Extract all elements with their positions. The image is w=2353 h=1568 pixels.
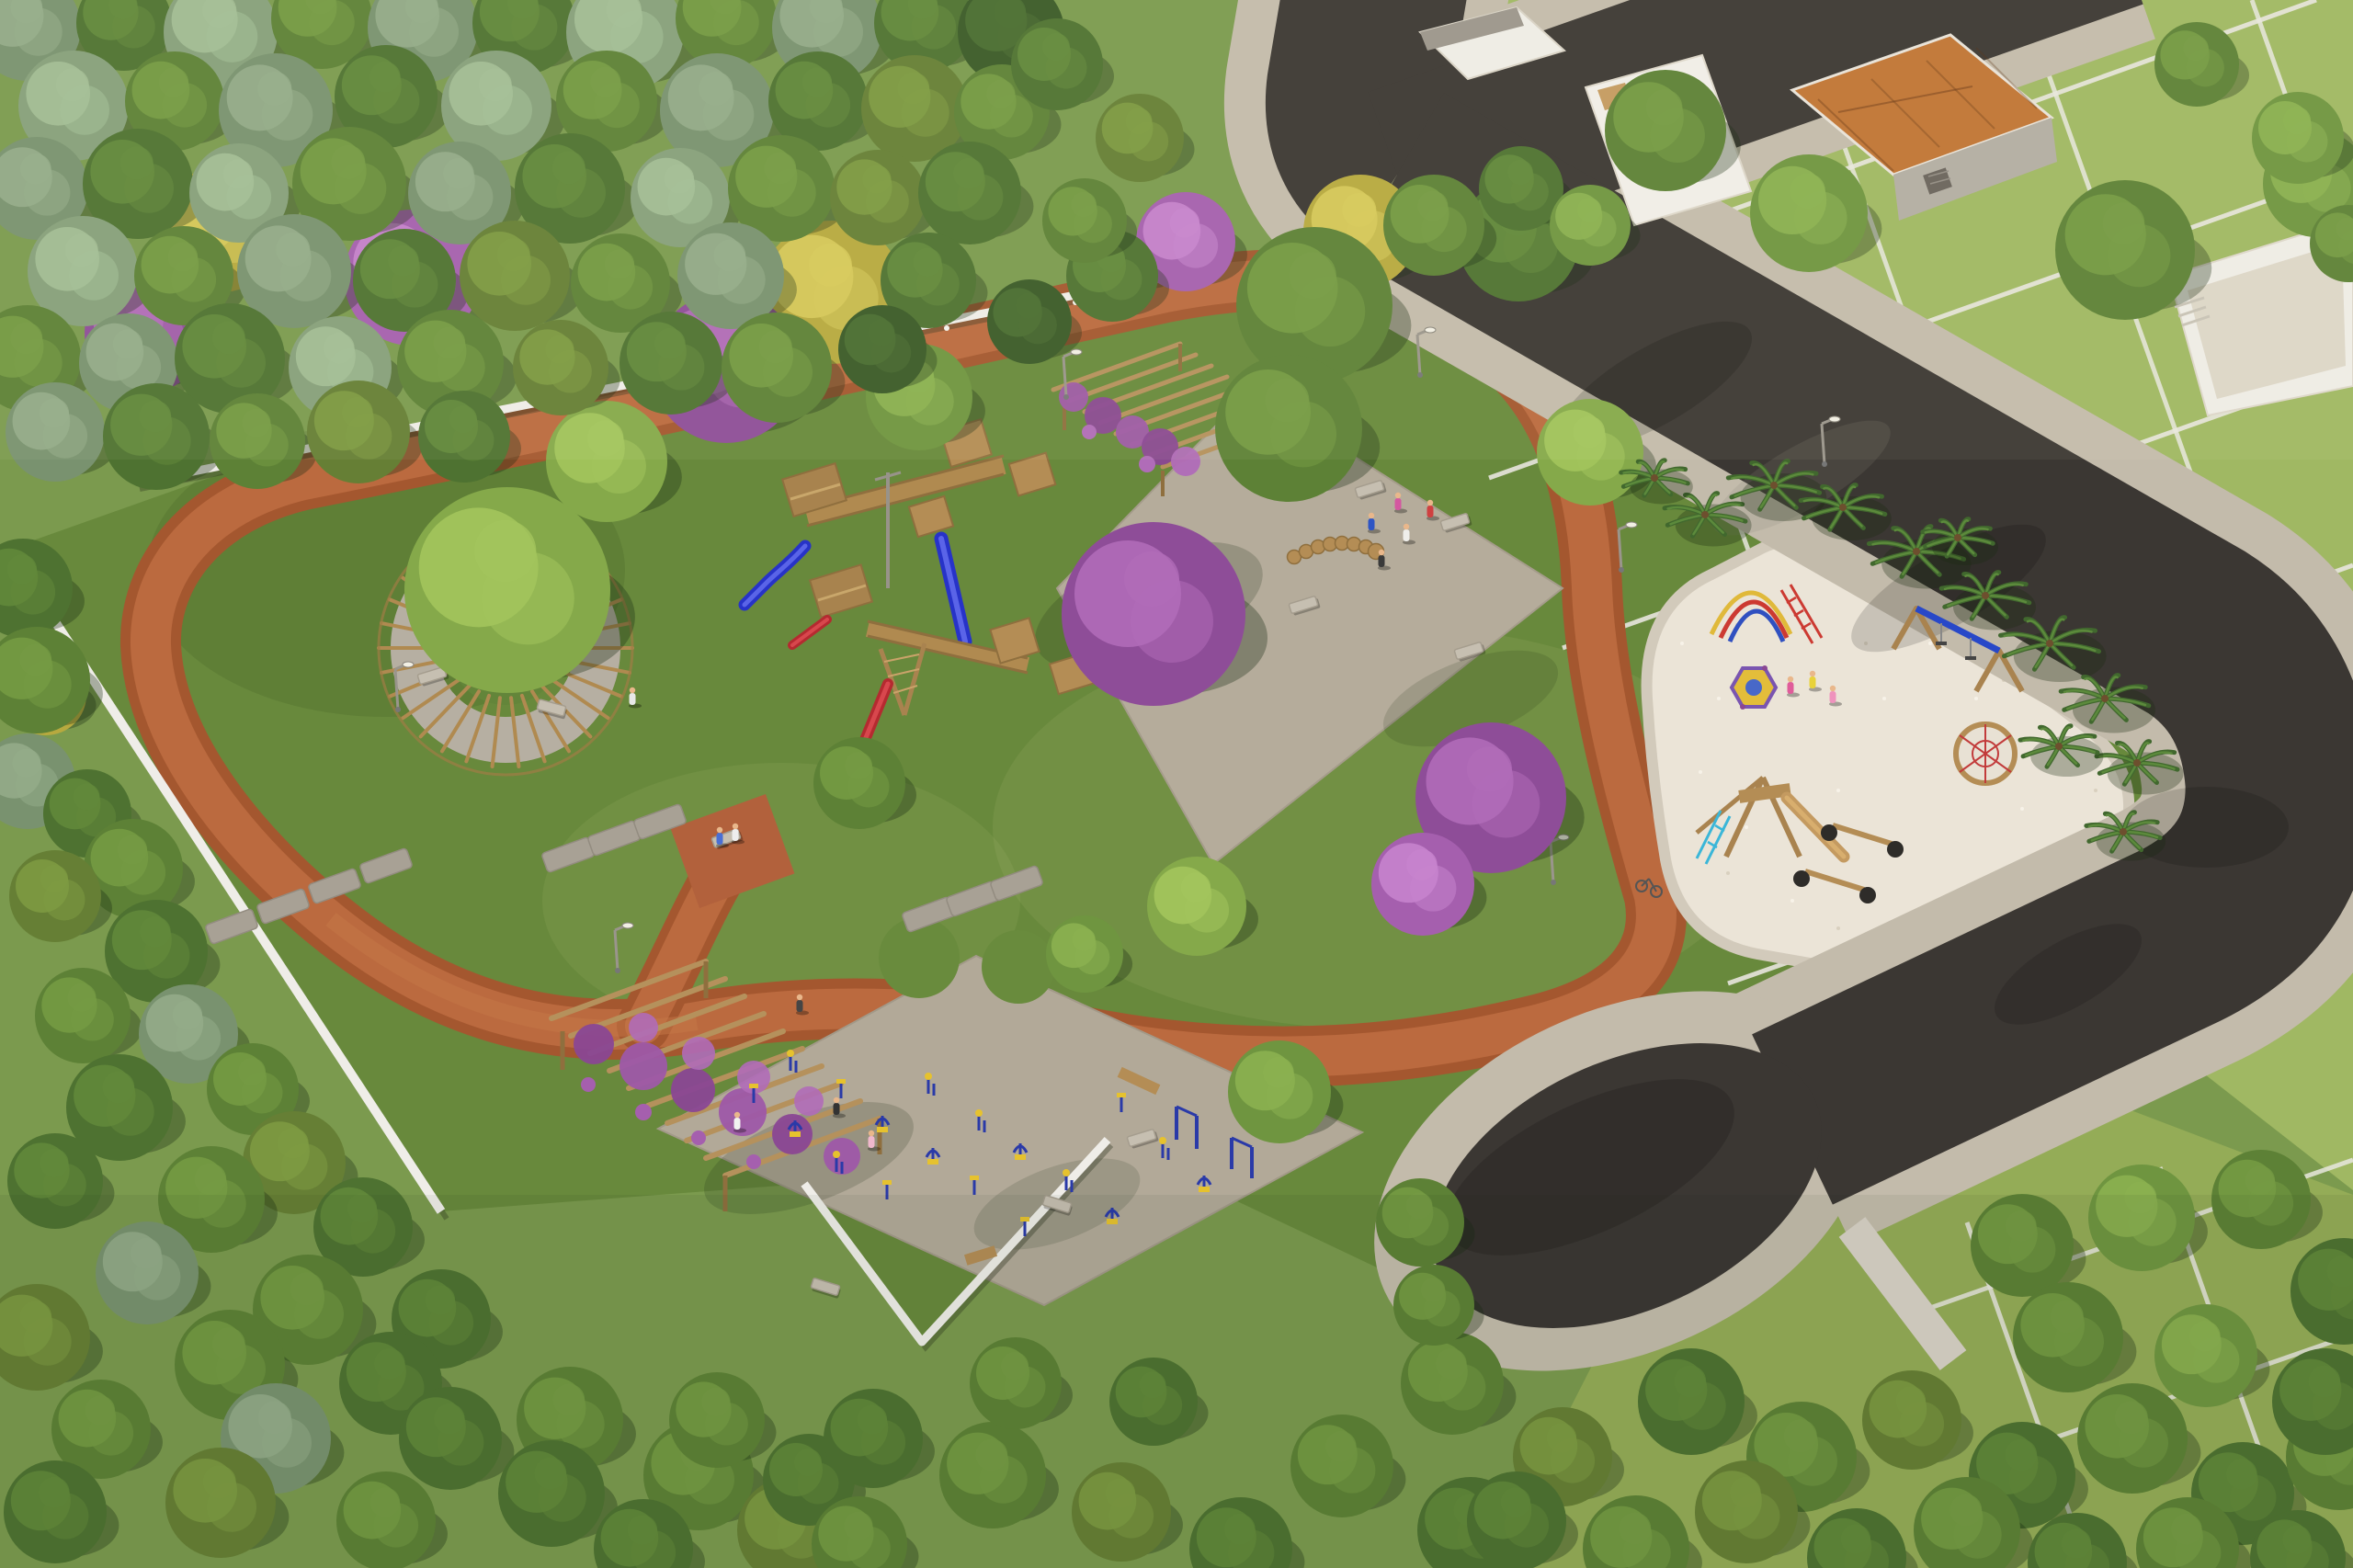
- park-aerial-render: [0, 0, 2353, 1568]
- scene-canvas: [0, 0, 2353, 1568]
